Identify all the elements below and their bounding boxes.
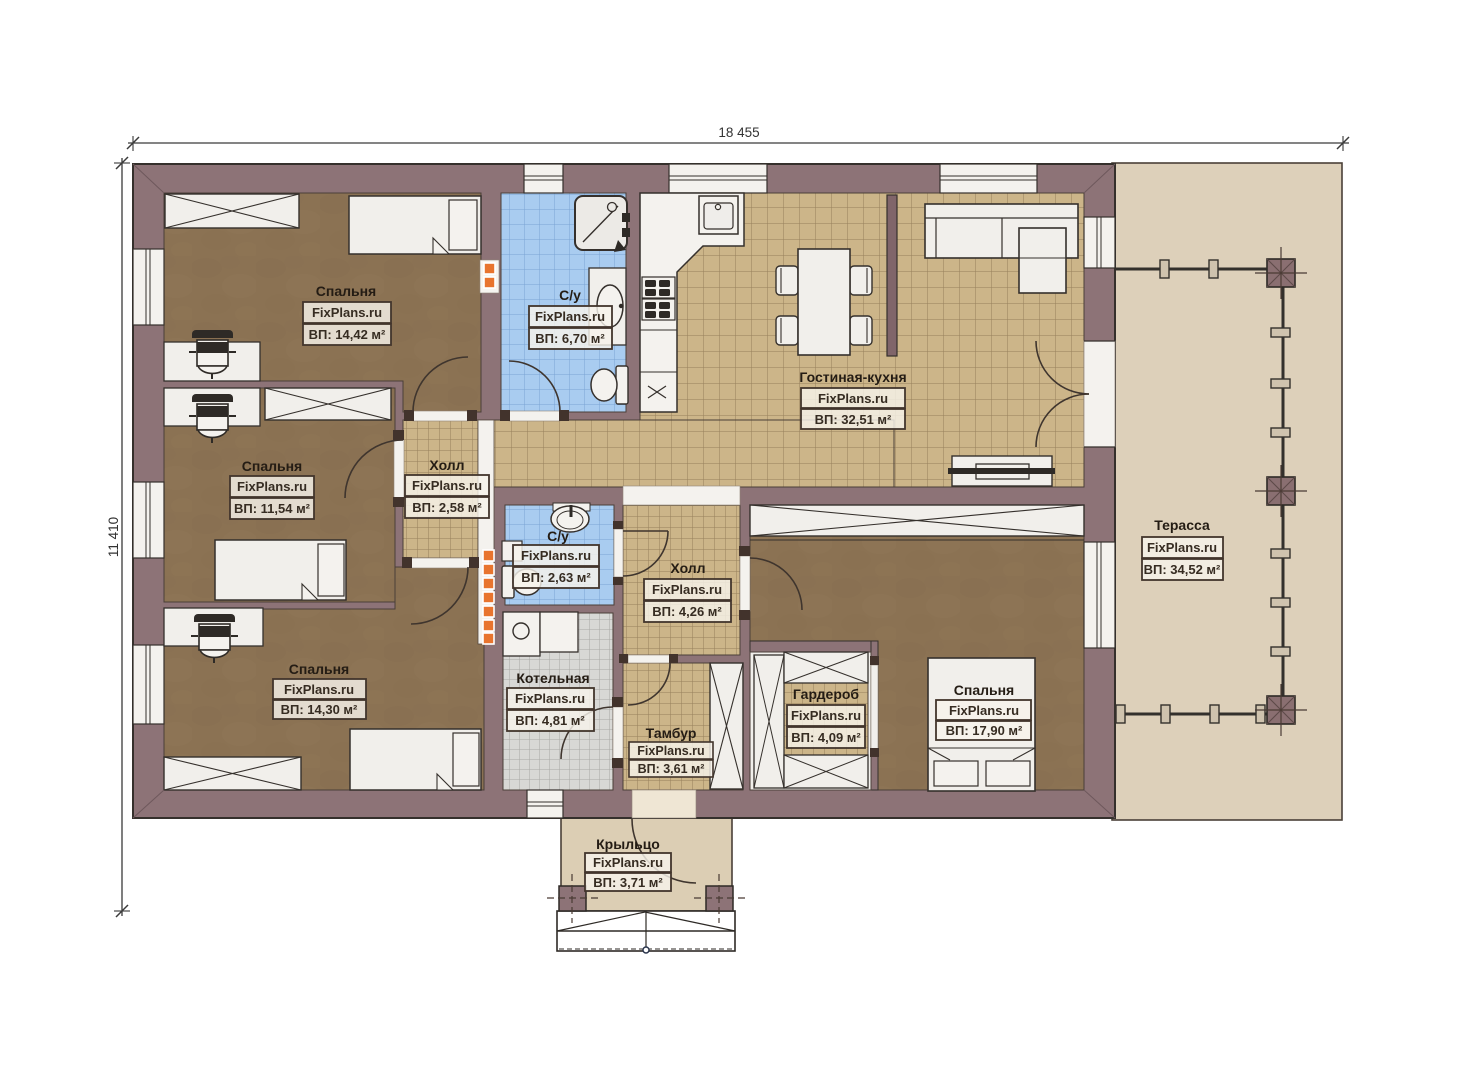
svg-text:Тамбур: Тамбур	[646, 725, 697, 741]
svg-text:Спальня: Спальня	[316, 283, 376, 299]
svg-text:ВП: 17,90 м²: ВП: 17,90 м²	[946, 723, 1023, 738]
svg-text:FixPlans.ru: FixPlans.ru	[1147, 540, 1217, 555]
svg-text:FixPlans.ru: FixPlans.ru	[535, 309, 605, 324]
svg-text:ВП: 6,70 м²: ВП: 6,70 м²	[535, 331, 605, 346]
svg-text:С/у: С/у	[547, 528, 569, 544]
svg-text:ВП: 4,81 м²: ВП: 4,81 м²	[515, 713, 585, 728]
svg-text:Спальня: Спальня	[289, 661, 349, 677]
svg-text:FixPlans.ru: FixPlans.ru	[515, 691, 585, 706]
svg-text:FixPlans.ru: FixPlans.ru	[637, 744, 704, 758]
svg-text:FixPlans.ru: FixPlans.ru	[818, 391, 888, 406]
svg-text:Спальня: Спальня	[954, 682, 1014, 698]
svg-text:Холл: Холл	[429, 457, 464, 473]
svg-text:Котельная: Котельная	[516, 670, 589, 686]
svg-text:ВП: 14,42 м²: ВП: 14,42 м²	[309, 327, 386, 342]
svg-text:ВП: 14,30 м²: ВП: 14,30 м²	[281, 702, 358, 717]
svg-text:ВП: 3,71 м²: ВП: 3,71 м²	[593, 875, 663, 890]
svg-text:FixPlans.ru: FixPlans.ru	[791, 708, 861, 723]
svg-text:ВП: 11,54 м²: ВП: 11,54 м²	[234, 501, 311, 516]
svg-text:Гостиная-кухня: Гостиная-кухня	[799, 369, 906, 385]
svg-text:FixPlans.ru: FixPlans.ru	[652, 582, 722, 597]
svg-text:ВП: 32,51 м²: ВП: 32,51 м²	[815, 412, 892, 427]
svg-text:FixPlans.ru: FixPlans.ru	[237, 479, 307, 494]
svg-text:FixPlans.ru: FixPlans.ru	[949, 703, 1019, 718]
svg-text:FixPlans.ru: FixPlans.ru	[312, 305, 382, 320]
svg-text:Спальня: Спальня	[242, 458, 302, 474]
svg-text:Терасса: Терасса	[1154, 517, 1210, 533]
svg-text:ВП: 2,63 м²: ВП: 2,63 м²	[521, 570, 591, 585]
svg-text:ВП: 4,09 м²: ВП: 4,09 м²	[791, 730, 861, 745]
svg-text:Крыльцо: Крыльцо	[596, 836, 660, 852]
svg-text:18 455: 18 455	[718, 125, 759, 140]
svg-text:ВП: 4,26 м²: ВП: 4,26 м²	[652, 604, 722, 619]
svg-text:FixPlans.ru: FixPlans.ru	[284, 682, 354, 697]
svg-text:ВП: 2,58 м²: ВП: 2,58 м²	[412, 500, 482, 515]
svg-text:FixPlans.ru: FixPlans.ru	[412, 478, 482, 493]
svg-text:FixPlans.ru: FixPlans.ru	[521, 548, 591, 563]
svg-text:Холл: Холл	[670, 560, 705, 576]
svg-text:ВП: 3,61 м²: ВП: 3,61 м²	[638, 762, 705, 776]
svg-text:ВП: 34,52 м²: ВП: 34,52 м²	[1144, 562, 1221, 577]
svg-text:11 410: 11 410	[106, 517, 121, 557]
svg-text:FixPlans.ru: FixPlans.ru	[593, 855, 663, 870]
svg-text:Гардероб: Гардероб	[793, 686, 860, 702]
svg-text:С/у: С/у	[559, 287, 581, 303]
